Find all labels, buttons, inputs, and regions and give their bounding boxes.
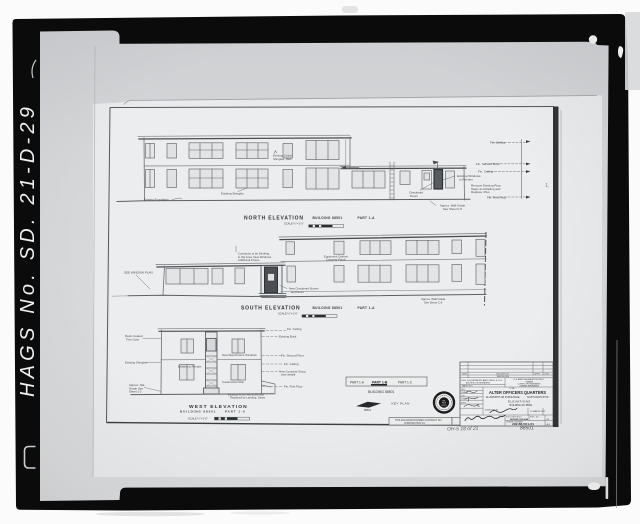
svg-text:HAGS No. SD. 21-D-29: HAGS No. SD. 21-D-29	[17, 103, 39, 397]
